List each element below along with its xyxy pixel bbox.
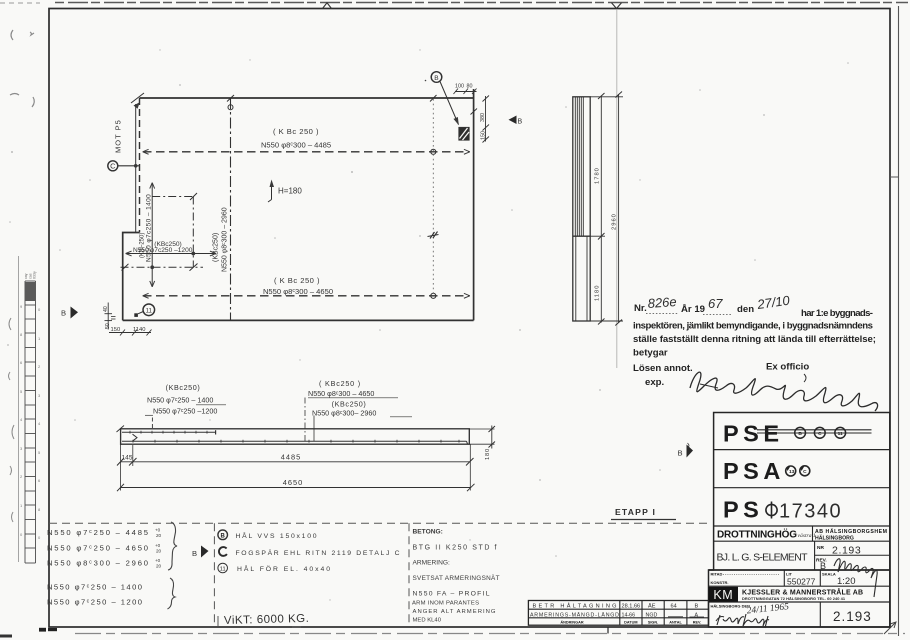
svg-text:40: 40 — [103, 306, 109, 312]
svg-text:64: 64 — [671, 604, 677, 610]
svg-text:DROTTNINGHÖG: DROTTNINGHÖG — [717, 528, 797, 541]
svg-text:1180: 1180 — [595, 285, 601, 301]
svg-text:B: B — [434, 75, 439, 82]
svg-text:20: 20 — [156, 564, 162, 569]
svg-text:20: 20 — [156, 533, 162, 538]
svg-text:MED KL40: MED KL40 — [413, 618, 442, 624]
svg-text:4650: 4650 — [283, 478, 303, 487]
svg-text:67: 67 — [708, 296, 723, 311]
svg-text:N550 φ8ᶜ300– 2960: N550 φ8ᶜ300– 2960 — [312, 409, 376, 418]
svg-text:1140: 1140 — [133, 327, 145, 333]
svg-text:År 19: År 19 — [681, 304, 705, 315]
svg-text:den: den — [737, 304, 754, 315]
svg-text:(KBc250): (KBc250) — [332, 400, 367, 409]
svg-text:exp.: exp. — [645, 377, 664, 388]
svg-text:ARMERING:: ARMERING: — [413, 560, 451, 567]
svg-text:550277: 550277 — [787, 577, 816, 587]
svg-text:N550 φ8ᶜ300 – 4650: N550 φ8ᶜ300 – 4650 — [263, 287, 333, 296]
svg-text:SVETSAT ARMERINGSNÄT: SVETSAT ARMERINGSNÄT — [413, 574, 500, 582]
svg-text:( KBc250 ): ( KBc250 ) — [319, 379, 361, 388]
svg-text:13: 13 — [789, 469, 795, 475]
svg-text:φ7c250 –1200: φ7c250 –1200 — [150, 247, 193, 254]
svg-text:NR: NR — [817, 545, 824, 551]
svg-text:N550 φ7ᶜ250 –1200: N550 φ7ᶜ250 –1200 — [153, 407, 217, 416]
svg-text:BTG II K250 STD f: BTG II K250 STD f — [413, 545, 497, 552]
svg-text:N550: N550 — [133, 247, 149, 254]
svg-text:(KBc250): (KBc250) — [213, 233, 220, 262]
svg-text:har 1:e byggnads-: har 1:e byggnads- — [801, 308, 873, 319]
svg-text:11: 11 — [838, 431, 843, 437]
svg-text:C: C — [818, 431, 822, 437]
svg-text:B: B — [695, 604, 699, 610]
svg-text:C: C — [110, 162, 116, 171]
svg-text:N550 φ7ᶜ250 – 4650: N550 φ7ᶜ250 – 4650 — [47, 544, 148, 553]
svg-text:NGD: NGD — [646, 612, 658, 618]
svg-text:(KBc250): (KBc250) — [166, 383, 201, 392]
svg-text:+0: +0 — [155, 543, 161, 548]
svg-text:N550 φ8ᶜ300 – 2960: N550 φ8ᶜ300 – 2960 — [222, 207, 229, 272]
svg-text:380: 380 — [480, 113, 486, 122]
svg-text:betygar: betygar — [633, 348, 668, 359]
svg-text:1:20: 1:20 — [837, 576, 856, 587]
svg-text:REV.: REV. — [693, 620, 702, 624]
svg-text:PS: PS — [723, 497, 763, 523]
svg-text:4485: 4485 — [281, 453, 301, 462]
svg-text:ARMERINGS-MÄNGD-LÄNGD: ARMERINGS-MÄNGD-LÄNGD — [530, 611, 619, 618]
svg-text:Ex officio: Ex officio — [766, 362, 809, 373]
svg-text:ANTAL: ANTAL — [669, 620, 682, 624]
svg-text:2.193: 2.193 — [833, 609, 872, 624]
svg-text:B: B — [798, 431, 802, 437]
svg-text:20: 20 — [156, 549, 162, 554]
svg-text:ÄNDRINGAR: ÄNDRINGAR — [560, 620, 583, 624]
svg-text:ställe fastställt denna ritnin: ställe fastställt denna ritning att länd… — [633, 334, 876, 345]
svg-text:ETAPP I: ETAPP I — [615, 507, 656, 517]
svg-text:11: 11 — [220, 567, 226, 573]
svg-text:HÅL VVS 150x100: HÅL VVS 150x100 — [236, 531, 317, 540]
svg-text:14-66: 14-66 — [622, 612, 636, 618]
svg-text:17340: 17340 — [779, 501, 842, 523]
svg-text:H=180: H=180 — [278, 187, 302, 196]
svg-text:B: B — [678, 449, 683, 458]
svg-text:RITAD: RITAD — [711, 572, 723, 577]
svg-text:150: 150 — [481, 131, 487, 140]
svg-text:N550 φ7ᶜ250 – 1400: N550 φ7ᶜ250 – 1400 — [47, 583, 142, 592]
svg-text:BJ. L. G. S-ELEMENT: BJ. L. G. S-ELEMENT — [717, 552, 809, 564]
svg-text:100: 100 — [455, 84, 464, 90]
svg-text:N550 φ8ᶜ300 – 4485: N550 φ8ᶜ300 – 4485 — [261, 141, 331, 150]
svg-text:+0: +0 — [155, 558, 161, 563]
svg-text:AB HÄLSINGBORGSHEM: AB HÄLSINGBORGSHEM — [815, 528, 887, 535]
svg-text:HÅL FÖR EL. 40x40: HÅL FÖR EL. 40x40 — [237, 564, 330, 573]
svg-text:ViKT: 6000 KG.: ViKT: 6000 KG. — [224, 613, 310, 627]
svg-text:västra 1: västra 1 — [798, 533, 816, 539]
svg-text:N550 φ7ᶜ250 – 1200: N550 φ7ᶜ250 – 1200 — [47, 598, 142, 607]
svg-text:28.1.66: 28.1.66 — [622, 604, 641, 610]
svg-text:cay: cay — [24, 273, 28, 279]
svg-text:B: B — [820, 561, 826, 571]
svg-text:DATUM: DATUM — [624, 620, 637, 624]
svg-text:ANGER ALT ARMERING: ANGER ALT ARMERING — [413, 609, 496, 615]
svg-text:1780: 1780 — [595, 167, 601, 184]
svg-text:SIGN.: SIGN. — [648, 620, 658, 624]
svg-text:DROTTNINGGATAN 72 HÄLSINGBOR: DROTTNINGGATAN 72 HÄLSINGBORG TEL. 60 24… — [742, 596, 846, 601]
svg-text:KM: KM — [713, 588, 733, 602]
svg-text:145: 145 — [122, 455, 133, 462]
svg-text:2.193: 2.193 — [832, 545, 861, 557]
svg-text:80: 80 — [467, 84, 473, 90]
svg-text:N550 φ7ᶜ250 – 4485: N550 φ7ᶜ250 – 4485 — [47, 528, 148, 537]
svg-text:( K Bc 250 ): ( K Bc 250 ) — [273, 127, 319, 136]
svg-text:B: B — [221, 534, 226, 540]
svg-text:ARM INOM PARANTES: ARM INOM PARANTES — [412, 601, 479, 607]
svg-text:KONSTR.: KONSTR. — [711, 580, 729, 585]
svg-text:HÄLSINGBORG: HÄLSINGBORG — [815, 535, 854, 542]
svg-text:SKALA: SKALA — [822, 572, 836, 577]
svg-text:B: B — [518, 119, 523, 126]
svg-text:MOT P5: MOT P5 — [114, 119, 123, 153]
svg-text:C: C — [803, 469, 807, 475]
svg-text:HÄLSINGBORG DEN: HÄLSINGBORG DEN — [711, 604, 751, 609]
svg-text:826e: 826e — [647, 294, 677, 311]
svg-text:( K Bc 250 ): ( K Bc 250 ) — [274, 276, 320, 285]
svg-text:B: B — [192, 549, 197, 558]
svg-text:inspektören, jämlikt bemyndiga: inspektören, jämlikt bemyndigande, i byg… — [633, 321, 873, 332]
svg-text:ÄE: ÄE — [648, 603, 656, 610]
svg-text:150: 150 — [111, 327, 121, 333]
svg-text:N550 φ8ᶜ300 – 2960: N550 φ8ᶜ300 – 2960 — [47, 559, 148, 568]
svg-text:BETONG:: BETONG: — [413, 529, 443, 536]
svg-text:PSA: PSA — [723, 458, 785, 484]
svg-text:11: 11 — [146, 308, 153, 315]
svg-text:N550 φ7ᶜ250 – 1400: N550 φ7ᶜ250 – 1400 — [147, 396, 213, 405]
svg-text:033y: 033y — [33, 271, 37, 279]
svg-text:B: B — [61, 309, 66, 318]
svg-text:Lösen annot.: Lösen annot. — [633, 363, 693, 374]
svg-text:2960: 2960 — [612, 213, 618, 230]
svg-text:180: 180 — [485, 448, 491, 460]
svg-text:Nr.: Nr. — [634, 303, 647, 314]
svg-text:+0: +0 — [155, 528, 161, 533]
svg-text:N550 φ8ᶜ300 – 4650: N550 φ8ᶜ300 – 4650 — [308, 389, 374, 398]
svg-text:N550 FA – PROFIL: N550 FA – PROFIL — [413, 591, 490, 598]
